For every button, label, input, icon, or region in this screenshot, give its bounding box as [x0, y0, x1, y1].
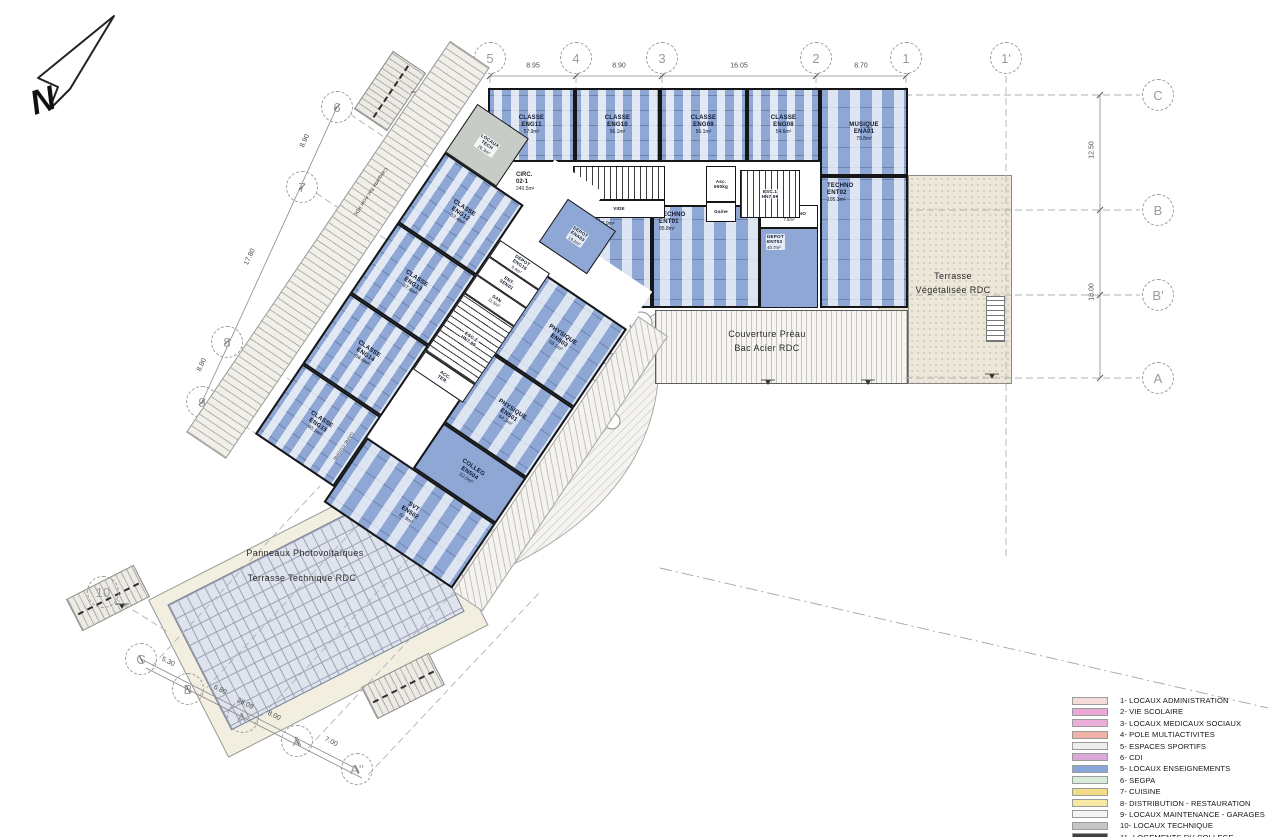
legend-swatch [1072, 822, 1108, 830]
legend-label: 9- LOCAUX MAINTENANCE - GARAGES [1120, 810, 1265, 819]
gaine-cuisine-label: GAINE CUISINE [332, 431, 355, 462]
legend-row: 11- LOGEMENTS DU COLLEGE [1072, 833, 1265, 837]
legend-label: 7- CUISINE [1120, 787, 1161, 796]
legend-row: 8- DISTRIBUTION - RESTAURATION [1072, 799, 1265, 808]
circulation-fill [488, 88, 908, 308]
dimension-label: 8.80 [196, 357, 208, 372]
room-techno1: TECHNOENT0195.8m² [652, 205, 760, 308]
legend-row: 6- CDI [1072, 753, 1265, 762]
room-ent_sen01: ENT.SEN01 [477, 257, 539, 309]
strip-centerline [373, 671, 435, 704]
legend-swatch [1072, 697, 1108, 705]
room-eng13: CLASSEENG1357.4m² [350, 222, 476, 346]
tree [630, 312, 652, 334]
legend-swatch [1072, 799, 1108, 807]
room-label-eng12: CLASSEENG1257.4m² [444, 198, 476, 229]
room-label-eng14: CLASSEENG1456.6m² [349, 339, 381, 370]
grid-axis-B': B' [1142, 279, 1174, 311]
circ-line2: 02-1 [516, 179, 534, 186]
walkway-hatched [432, 312, 658, 596]
room-label-musique: MUSIQUEENA0179.8m² [849, 122, 878, 142]
room-label-depot_ena03: DEPOTENA0319.2m² [565, 225, 589, 249]
legend: 1- LOCAUX ADMINISTRATION2- VIE SCOLAIRE3… [1072, 696, 1265, 837]
room-label-ent_sen01: ENT.SEN01 [498, 273, 518, 292]
circ-line1: CIRC. [516, 172, 534, 179]
grid-axis-9: 9 [186, 386, 218, 418]
legend-swatch [1072, 810, 1108, 818]
dimension-label: 5.30 [160, 656, 175, 668]
tree [585, 387, 609, 411]
floor-plan-canvas: CLASSEENG1157.9m²CLASSEENG1056.1m²CLASSE… [0, 0, 1280, 837]
dimension-label: 8.95 [526, 63, 540, 70]
room-label-eng11: CLASSEENG1157.9m² [519, 115, 545, 135]
grid-axis-C: C [125, 643, 157, 675]
pv-label: Panneaux Photovoltaïques [205, 547, 405, 561]
legend-label: 11- LOGEMENTS DU COLLEGE [1120, 833, 1234, 837]
room-label-circ_techno: CIRC.TECHNO7.6m² [771, 211, 807, 222]
legend-swatch [1072, 788, 1108, 796]
room-vide: VIDE [573, 200, 665, 218]
room-phys503: PHYSIQUEEN50358.1m² [491, 273, 627, 408]
legend-row: 5- ESPACES SPORTIFS [1072, 742, 1265, 751]
legend-row: 9- LOCAUX MAINTENANCE - GARAGES [1072, 810, 1265, 819]
grid-axis-B: B [1142, 194, 1174, 226]
legend-label: 6- CDI [1120, 753, 1143, 762]
legend-row: 3- LOCAUX MEDICAUX SOCIAUX [1072, 719, 1265, 728]
dimension-label: 8.90 [612, 63, 626, 70]
grid-axis-1': 1' [990, 42, 1022, 74]
preau-line2: Bac Acier RDC [697, 342, 837, 356]
grid-axis-3: 3 [646, 42, 678, 74]
room-asc: Asc.600kg [706, 166, 736, 202]
legend-row: 1- LOCAUX ADMINISTRATION [1072, 696, 1265, 705]
legend-label: 2- VIE SCOLAIRE [1120, 707, 1183, 716]
legend-row: 2- VIE SCOLAIRE [1072, 707, 1265, 716]
legend-swatch [1072, 742, 1108, 750]
room-label-depot_ent03: DEPOTENT0340.7m² [766, 234, 785, 250]
room-label-colleg504: COLLEGEN50452.0m² [453, 458, 486, 489]
room-circ_techno: CIRC.TECHNO7.6m² [760, 205, 818, 228]
legend-row: 7- CUISINE [1072, 787, 1265, 796]
terrace-line1: Terrasse [903, 270, 1003, 284]
room-mainstair [573, 166, 665, 200]
wing-walkway-band [453, 316, 668, 611]
room-label-eng13: CLASSEENG1357.4m² [397, 269, 429, 300]
room-label-locaux_tech: LOCAUXTECH26.3m² [473, 132, 501, 158]
room-label-eng15: CLASSEENG1560.1m² [302, 410, 334, 441]
legend-label: 8- DISTRIBUTION - RESTAURATION [1120, 799, 1251, 808]
grid-axis-2: 2 [800, 42, 832, 74]
photovoltaic-terrace [148, 467, 489, 757]
room-depot_eng16: DEPOTENG169.4m² [489, 240, 550, 290]
circulation-fill [548, 239, 652, 329]
legend-swatch [1072, 833, 1108, 837]
legend-label: 4- POLE MULTIACTIVITES [1120, 730, 1215, 739]
grid-axis-6: 6 [321, 91, 353, 123]
legend-label: 5- ESPACES SPORTIFS [1120, 742, 1206, 751]
room-colleg504: COLLEGEN50452.0m² [413, 422, 527, 524]
dimension-label: 8.90 [299, 133, 311, 148]
legend-row: 10- LOCAUX TECHNIQUE [1072, 821, 1265, 830]
room-label-esc2: ESC.2HN7.99 [459, 329, 480, 348]
circulation-label: CIRC. 02-1 240.5m² [516, 172, 534, 192]
room-label-phys503: PHYSIQUEEN50358.1m² [540, 323, 578, 358]
grid-axis-A'': A'' [341, 753, 373, 785]
legend-swatch [1072, 776, 1108, 784]
room-acc_ter: ACC.TER. [413, 351, 475, 403]
pv-line1: Panneaux Photovoltaïques [205, 547, 405, 561]
legend-label: 3- LOCAUX MEDICAUX SOCIAUX [1120, 719, 1241, 728]
room-eng11: CLASSEENG1157.9m² [488, 88, 575, 162]
tt-line1: Terrasse Technique RDC [202, 572, 402, 586]
legend-swatch [1072, 765, 1108, 773]
legend-swatch [1072, 731, 1108, 739]
technical-terrace-label: Terrasse Technique RDC [202, 572, 402, 586]
legend-row: 4- POLE MULTIACTIVITES [1072, 730, 1265, 739]
room-label-acc_ter: ACC.TER. [435, 369, 453, 386]
grid-axis-7: 7 [286, 171, 318, 203]
room-label-phys501: PHYSIQUEEN50164.3m² [490, 398, 528, 433]
dimension-label: 16.05 [730, 63, 748, 70]
terrace-stair [986, 296, 1005, 342]
room-esc1: ESC.1HN7.99 [740, 170, 800, 218]
room-eng15: CLASSEENG1560.1m² [255, 363, 381, 487]
tree [604, 413, 620, 429]
room-techno2: TECHNOENT02105.3m² [820, 176, 908, 308]
grid-axis-1: 1 [890, 42, 922, 74]
grid-axis-C: C [1142, 79, 1174, 111]
room-eng12: CLASSEENG1257.4m² [397, 152, 523, 276]
room-label-plastik: PLASTIKENA0279.9m² [599, 207, 626, 227]
strip-centerline [373, 65, 410, 118]
grid-axis-A: A [281, 725, 313, 757]
circulation-fill [497, 196, 597, 308]
room-label-eng09: CLASSEENG0956.1m² [691, 115, 717, 135]
room-eng09: CLASSEENG0956.1m² [660, 88, 747, 162]
room-depot_ent03: DEPOTENT0340.7m² [760, 228, 818, 308]
terrace-label: Terrasse Végétalisée RDC [903, 270, 1003, 297]
north-arrow: N [18, 8, 128, 123]
room-label-techno2: TECHNOENT02105.3m² [827, 183, 854, 203]
room-label-depot_eng16: DEPOTENG169.4m² [507, 253, 531, 277]
room-label-san: SAN11.5m² [486, 292, 505, 309]
canopy-strip-north [354, 51, 426, 131]
canopy-label: Casquette Bac Acier RDC [351, 166, 388, 217]
room-esc2: ESC.2HN7.99 [425, 293, 514, 385]
room-musique: MUSIQUEENA0179.8m² [820, 88, 908, 176]
grid-axis-4: 4 [560, 42, 592, 74]
preau-line1: Couverture Préau [697, 328, 837, 342]
room-eng10: CLASSEENG1056.1m² [575, 88, 660, 162]
grid-axis-5: 5 [474, 42, 506, 74]
grid-axis-8: 8 [211, 326, 243, 358]
preau-label: Couverture Préau Bac Acier RDC [697, 328, 837, 355]
grid-axis-B: B [172, 673, 204, 705]
terrace-line2: Végétalisée RDC [903, 284, 1003, 298]
room-depot_ena03: DEPOTENA0319.2m² [539, 199, 616, 275]
dimension-label: 18.00 [1089, 283, 1096, 301]
room-eng14: CLASSEENG1456.6m² [302, 293, 428, 417]
legend-label: 5- LOCAUX ENSEIGNEMENTS [1120, 764, 1230, 773]
grid-axis-A: A [1142, 362, 1174, 394]
dimension-label: 8.70 [854, 63, 868, 70]
room-eng08: CLASSEENG0854.6m² [747, 88, 820, 162]
room-label-gaine: Gaine [713, 209, 729, 214]
legend-label: 1- LOCAUX ADMINISTRATION [1120, 696, 1229, 705]
room-label-esc1: ESC.1HN7.99 [761, 189, 780, 200]
legend-swatch [1072, 708, 1108, 716]
tree [587, 310, 631, 354]
room-phys501: PHYSIQUEEN50164.3m² [444, 352, 574, 478]
room-label-asc: Asc.600kg [713, 179, 729, 190]
dimension-label: 12.50 [1089, 141, 1096, 159]
room-label-eng10: CLASSEENG1056.1m² [605, 115, 631, 135]
legend-swatch [1072, 719, 1108, 727]
room-label-eng08: CLASSEENG0854.6m² [771, 115, 797, 135]
room-label-vide: VIDE [612, 206, 626, 211]
legend-label: 10- LOCAUX TECHNIQUE [1120, 821, 1213, 830]
legend-row: 6- SEGPA [1072, 776, 1265, 785]
legend-swatch [1072, 753, 1108, 761]
tree [590, 362, 610, 382]
dimension-label: 17.80 [243, 248, 257, 267]
room-label-techno1: TECHNOENT0195.8m² [659, 212, 686, 232]
room-plastik: PLASTIKENA0279.9m² [592, 200, 652, 308]
dimension-label: 7.00 [323, 736, 338, 748]
room-san: SAN11.5m² [464, 275, 526, 327]
room-gaine: Gaine [706, 202, 736, 222]
circ-area: 240.5m² [516, 186, 534, 192]
legend-label: 6- SEGPA [1120, 776, 1155, 785]
grid-axis-10: 10 [87, 576, 119, 608]
circulation-fill [367, 369, 463, 471]
legend-row: 5- LOCAUX ENSEIGNEMENTS [1072, 764, 1265, 773]
